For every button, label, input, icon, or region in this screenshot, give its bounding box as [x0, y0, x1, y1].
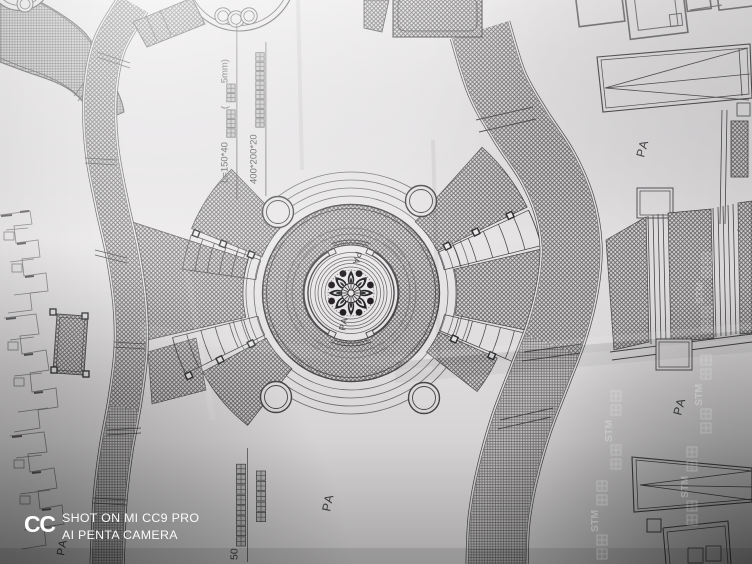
svg-text:STM: STM: [693, 384, 705, 406]
svg-text:STM: STM: [589, 510, 601, 532]
svg-text:CC: CC: [24, 511, 55, 537]
svg-text:STM: STM: [603, 420, 615, 442]
svg-text:SHOT ON MI CC9 PRO: SHOT ON MI CC9 PRO: [62, 511, 199, 525]
svg-text:STM: STM: [694, 282, 706, 304]
svg-text:STM: STM: [679, 476, 691, 498]
svg-text:AI PENTA CAMERA: AI PENTA CAMERA: [62, 528, 178, 542]
